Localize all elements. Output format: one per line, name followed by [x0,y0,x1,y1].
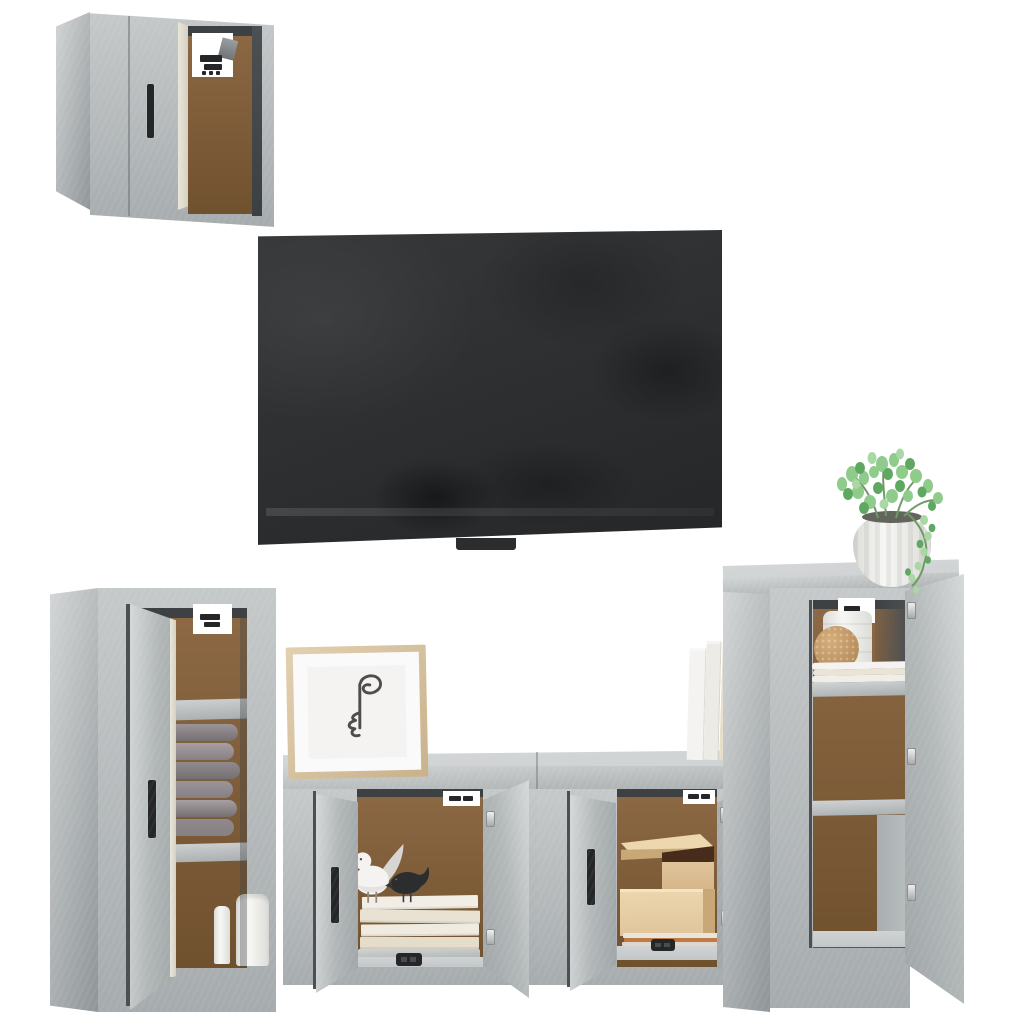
hinge-icon [486,929,495,945]
interior [813,600,907,948]
mounting-rail-icon [200,614,220,620]
cable-port-icon [410,957,416,962]
mounting-rail-icon [204,64,222,70]
wall-cabinet [56,10,274,228]
bird-eye [360,858,362,860]
cable-port-icon [655,943,661,947]
shelf [812,681,908,697]
door-gap [313,791,316,989]
mounting-cutout [193,604,232,634]
door-handle [148,780,156,838]
mounting-rail-icon [688,794,699,799]
wall-cabinet-interior-side-dark [252,26,262,216]
mounting-tooth-icon [209,71,213,75]
black-bird-figurine [385,862,433,904]
bird-leg [367,892,369,903]
picture-frame [286,645,429,780]
interior-side-wall [877,815,907,933]
open-box-front [662,862,714,892]
tall-cabinet-left-side-panel [50,588,98,1012]
cable-port-icon [664,943,670,947]
kraft-box [620,889,715,936]
tv-screen [258,230,722,548]
shelf [812,799,908,816]
book-stack-layer [360,909,480,923]
cable-port-icon [401,957,407,962]
bird-leg [403,894,405,902]
mounting-rail-icon [449,796,461,801]
wall-cabinet-door-seam [128,16,130,216]
wall-cabinet-door-handle [147,84,154,138]
cable-cover [396,953,422,966]
mounting-tooth-icon [202,71,206,75]
door-handle [331,867,339,923]
tv-bench-top-seam [536,752,538,789]
door-handle [587,849,595,905]
interior-floor [813,931,907,947]
side-panel [723,592,770,1012]
mounting-cutout [683,790,715,804]
bench-left-door-left [316,791,358,993]
plant-foliage [812,444,972,600]
bird-eye [395,878,397,880]
cable-cover [651,939,675,951]
wall-cabinet-open-door-edge [178,22,188,210]
tv-bench-unit-left [283,789,537,985]
bench-right-door-left [570,791,616,991]
mounting-rail-icon [463,796,473,801]
tall-cabinet-right-door [905,574,964,1006]
kraft-box-side [703,889,715,936]
wall-cabinet-side-panel [56,10,90,216]
door-gap [809,600,812,948]
bird-leg [410,894,412,902]
bench-right-interior [617,789,717,967]
bench-left-door-right [483,778,529,998]
bench-left-interior [357,789,483,967]
door-inner-edge [170,618,176,977]
book-stack-layer [360,937,479,949]
door-gap [126,604,130,1006]
face-line-art [307,665,407,759]
hinge-icon [907,884,916,901]
bird-beak [385,881,392,888]
mounting-cutout [443,791,480,806]
interior-side-shadow [240,608,247,968]
tall-cabinet-right [723,563,964,1013]
tall-cabinet-left [50,588,276,1012]
mounting-rail-icon [200,55,222,62]
mounting-rail-icon [701,794,710,799]
hinge-icon [907,602,916,619]
hinge-icon [907,748,916,765]
frame-mat [293,652,421,773]
wall-cabinet-mounting-cutout [192,33,233,77]
bird-body [390,867,429,894]
tv-stand-tab [456,538,516,550]
tall-cabinet-left-door [130,602,176,1010]
product-photo-stage [0,0,1024,1024]
tv-bottom-bezel [266,508,714,516]
book-stack-layer [361,923,479,936]
white-vase-small [214,906,230,964]
mounting-tooth-icon [216,71,220,75]
tv [258,230,722,548]
potted-plant [812,444,972,600]
hinge-icon [486,811,495,827]
bird-leg [375,892,377,903]
door-gap [567,791,570,987]
mounting-rail-icon [204,622,220,627]
